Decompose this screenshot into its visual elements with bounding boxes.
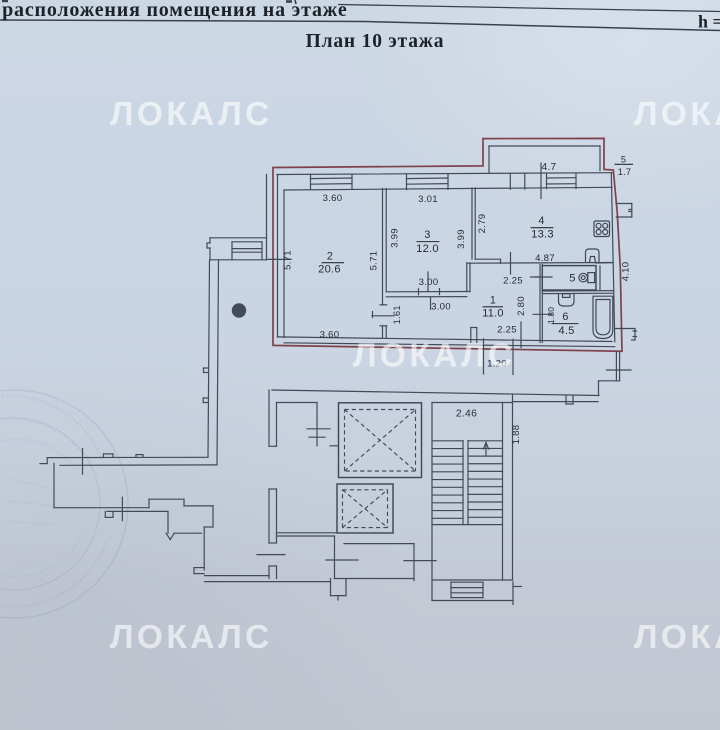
svg-text:ЛОКАЛС: ЛОКАЛС bbox=[353, 338, 516, 375]
svg-text:2: 2 bbox=[327, 251, 333, 263]
svg-text:3.99: 3.99 bbox=[456, 229, 467, 249]
svg-text:4.87: 4.87 bbox=[535, 253, 555, 264]
svg-text:4: 4 bbox=[538, 215, 544, 227]
svg-text:5: 5 bbox=[569, 273, 575, 285]
svg-text:ЛОКАЛС: ЛОКАЛС bbox=[634, 96, 720, 133]
svg-text:3: 3 bbox=[424, 229, 430, 241]
svg-text:5.71: 5.71 bbox=[283, 250, 294, 270]
svg-text:3.00: 3.00 bbox=[431, 302, 451, 313]
svg-text:ЛОКАЛС: ЛОКАЛС bbox=[634, 619, 720, 656]
svg-text:6: 6 bbox=[562, 311, 568, 323]
svg-text:2.80: 2.80 bbox=[516, 296, 527, 316]
svg-text:4.7: 4.7 bbox=[542, 162, 557, 173]
svg-text:5: 5 bbox=[621, 155, 626, 165]
svg-text:4.10: 4.10 bbox=[621, 262, 632, 282]
svg-text:1.88: 1.88 bbox=[511, 425, 522, 445]
svg-text:3.00: 3.00 bbox=[419, 277, 439, 288]
svg-text:3.60: 3.60 bbox=[320, 330, 340, 341]
svg-text:3.60: 3.60 bbox=[323, 193, 343, 204]
svg-text:и расположения помещения на эт: и расположения помещения на этаже bbox=[0, 0, 348, 21]
svg-text:3.01: 3.01 bbox=[418, 194, 438, 205]
svg-text:2.46: 2.46 bbox=[456, 409, 477, 420]
svg-text:13.3: 13.3 bbox=[531, 229, 554, 241]
svg-text:11.0: 11.0 bbox=[482, 308, 504, 320]
svg-text:1.80: 1.80 bbox=[546, 307, 556, 324]
svg-text:ЛОКАЛС: ЛОКАЛС bbox=[110, 96, 273, 133]
svg-text:1.7: 1.7 bbox=[618, 167, 632, 177]
svg-text:5.71: 5.71 bbox=[369, 251, 380, 271]
svg-text:2.79: 2.79 bbox=[477, 214, 488, 234]
svg-text:План 10 этажа: План 10 этажа bbox=[306, 31, 445, 52]
svg-text:12.0: 12.0 bbox=[416, 243, 439, 255]
svg-text:2.25: 2.25 bbox=[503, 276, 523, 287]
svg-text:1.61: 1.61 bbox=[391, 305, 402, 324]
svg-text:20.6: 20.6 bbox=[318, 264, 341, 276]
svg-text:ЛОКАЛС: ЛОКАЛС bbox=[110, 619, 273, 656]
svg-text:1: 1 bbox=[490, 295, 496, 307]
svg-text:4.5: 4.5 bbox=[558, 325, 574, 337]
svg-text:2.25: 2.25 bbox=[497, 325, 517, 336]
svg-text:3.99: 3.99 bbox=[390, 228, 401, 248]
svg-text:h =: h = bbox=[698, 12, 720, 32]
